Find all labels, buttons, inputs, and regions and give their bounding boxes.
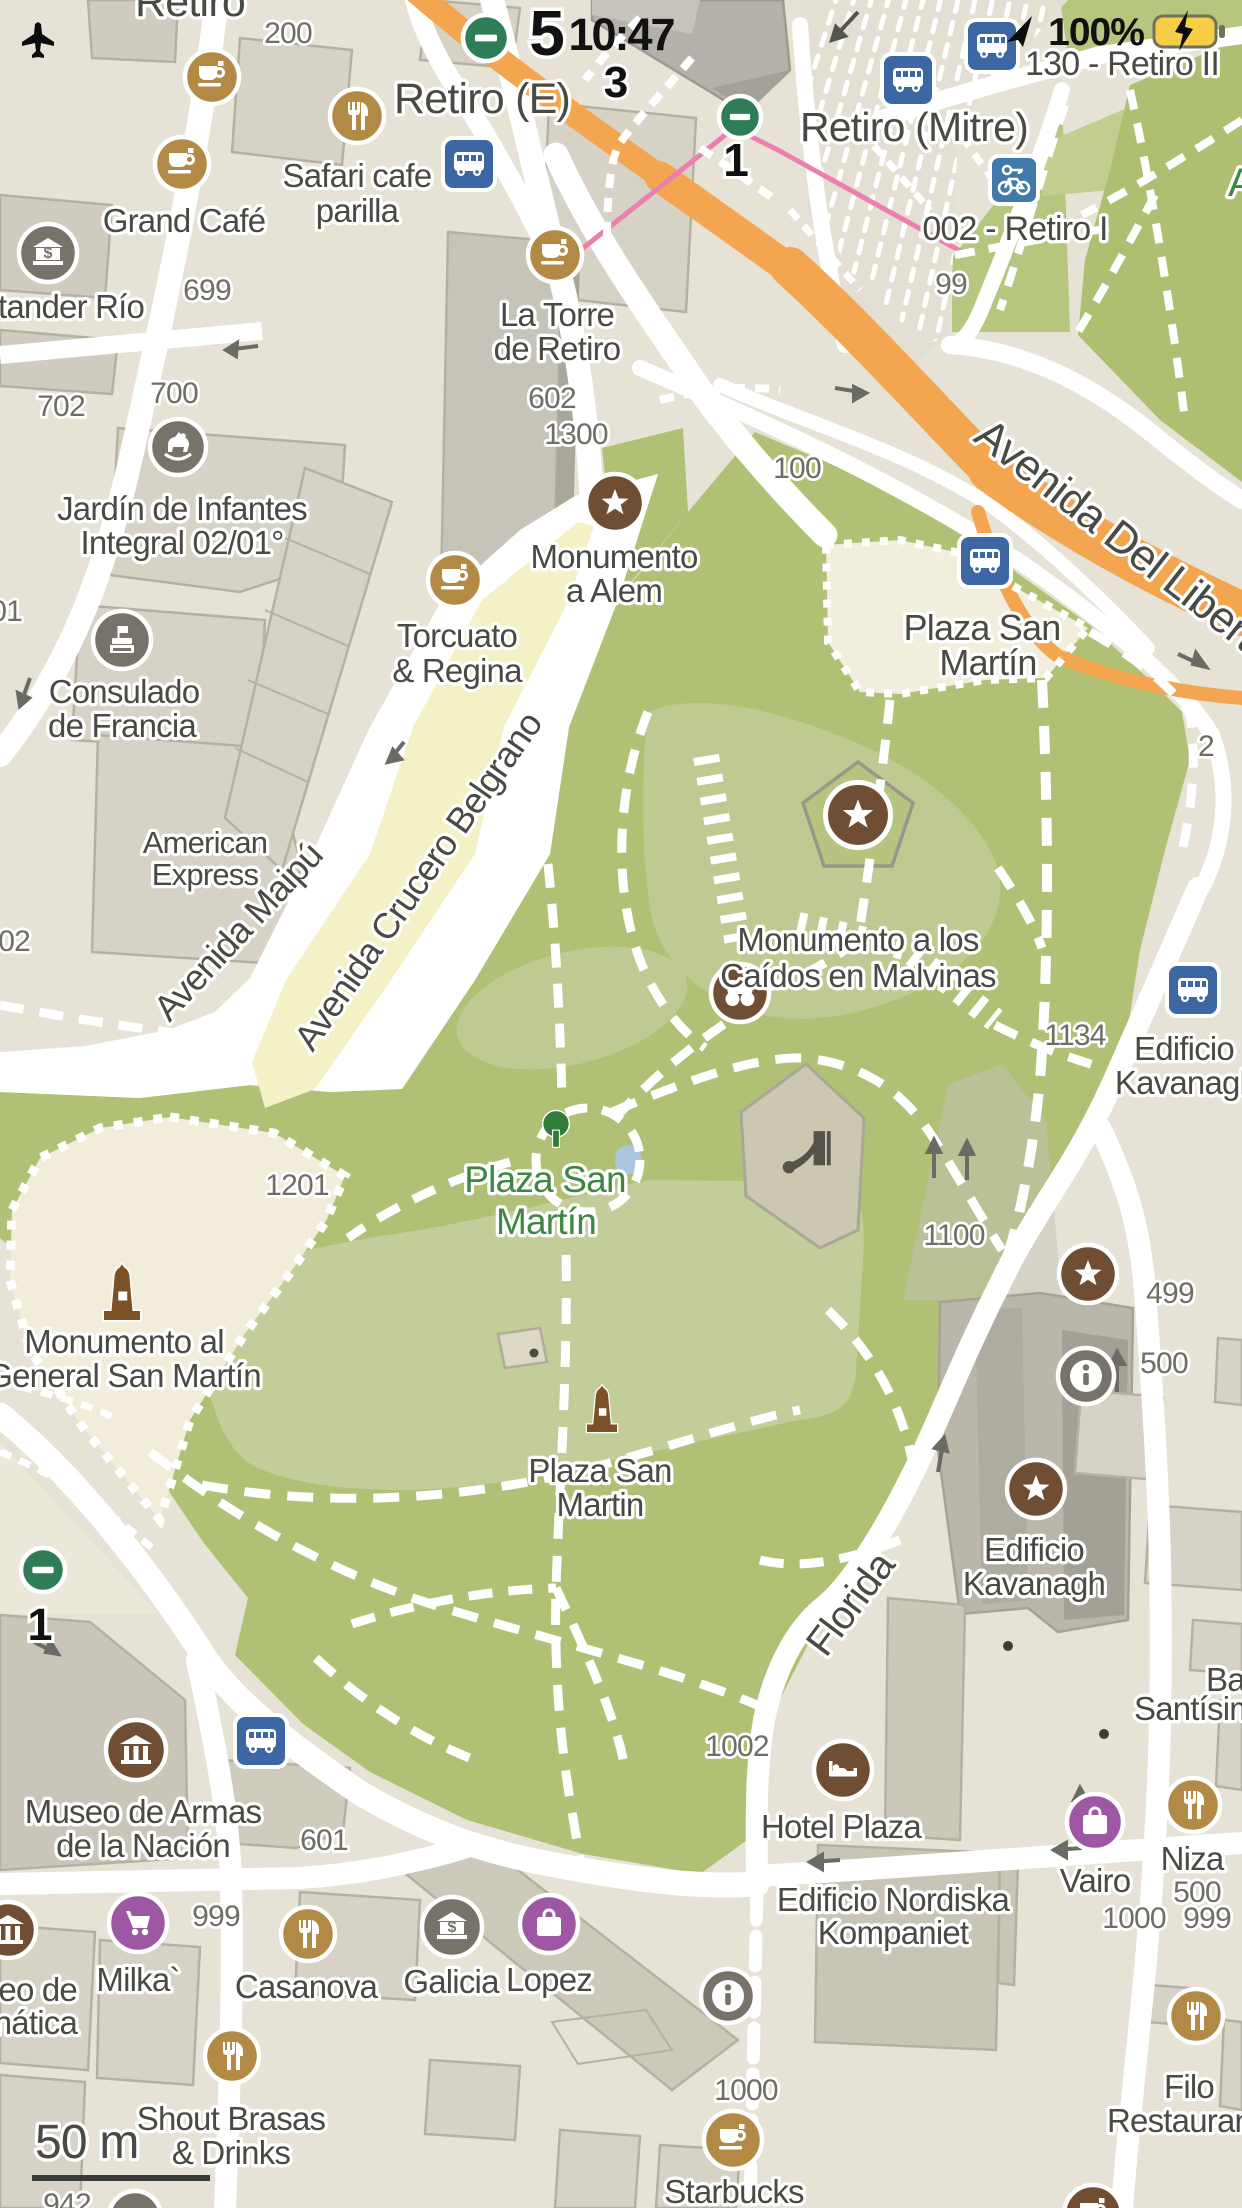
svg-text:General San Martín: General San Martín	[0, 1357, 261, 1394]
svg-text:de Retiro: de Retiro	[494, 330, 621, 367]
svg-text:Express: Express	[152, 857, 259, 892]
svg-text:& Drinks: & Drinks	[172, 2134, 291, 2171]
svg-text:Plaza San: Plaza San	[464, 1159, 625, 1200]
svg-text:Edificio: Edificio	[984, 1531, 1084, 1568]
svg-text:Museo de Armas: Museo de Armas	[25, 1793, 262, 1830]
svg-text:Casanova: Casanova	[235, 1968, 379, 2005]
svg-text:a Alem: a Alem	[566, 572, 662, 609]
svg-text:Monumento a los: Monumento a los	[737, 921, 978, 958]
svg-text:100: 100	[773, 452, 821, 485]
svg-text:Galicia: Galicia	[403, 1963, 500, 2000]
svg-text:02: 02	[0, 925, 30, 958]
svg-text:700: 700	[150, 377, 198, 410]
svg-text:Integral 02/01°: Integral 02/01°	[80, 524, 283, 561]
svg-text:Caídos en Malvinas: Caídos en Malvinas	[720, 957, 996, 994]
svg-text:La Torre: La Torre	[500, 296, 614, 333]
svg-text:Monumento al: Monumento al	[24, 1323, 224, 1360]
svg-text:1: 1	[27, 1599, 52, 1650]
svg-text:2: 2	[1198, 730, 1214, 763]
svg-text:American: American	[143, 825, 268, 860]
svg-text:Starbucks: Starbucks	[664, 2173, 804, 2208]
svg-text:Filo: Filo	[1164, 2068, 1214, 2105]
svg-text:Milka`: Milka`	[96, 1961, 179, 1998]
svg-text:1000: 1000	[1102, 1902, 1166, 1935]
svg-text:699: 699	[183, 274, 231, 307]
svg-text:602: 602	[528, 382, 576, 415]
svg-text:Retiro: Retiro	[135, 0, 245, 26]
svg-text:Shout Brasas: Shout Brasas	[137, 2100, 326, 2137]
svg-text:500: 500	[1140, 1347, 1188, 1380]
svg-text:100%: 100%	[1048, 11, 1144, 54]
svg-text:Safari cafe: Safari cafe	[283, 157, 432, 194]
svg-text:de la Nación: de la Nación	[56, 1827, 230, 1864]
svg-text:Martín: Martín	[496, 1201, 596, 1242]
svg-text:999: 999	[192, 1900, 240, 1933]
svg-text:Kavanagh: Kavanagh	[963, 1565, 1105, 1602]
svg-text:Retiro (E): Retiro (E)	[394, 75, 570, 123]
svg-text:Martín: Martín	[939, 642, 1036, 683]
svg-text:1134: 1134	[1044, 1019, 1105, 1052]
svg-text:1: 1	[723, 134, 749, 186]
svg-text:Edificio Nordiska: Edificio Nordiska	[777, 1881, 1011, 1918]
svg-text:5: 5	[529, 0, 565, 69]
svg-text:1002: 1002	[705, 1730, 769, 1763]
svg-text:Vairo: Vairo	[1060, 1862, 1131, 1899]
svg-text:1100: 1100	[923, 1219, 984, 1252]
svg-text:702: 702	[37, 390, 85, 423]
svg-text:Martin: Martin	[557, 1486, 644, 1523]
svg-text:3: 3	[604, 58, 628, 107]
svg-text:nática: nática	[0, 2004, 78, 2041]
svg-text:601: 601	[300, 1824, 348, 1857]
svg-text:Kavanagh: Kavanagh	[1115, 1064, 1242, 1101]
svg-text:942: 942	[43, 2188, 91, 2208]
svg-text:002 - Retiro I: 002 - Retiro I	[922, 210, 1107, 248]
svg-text:Consulado: Consulado	[49, 673, 200, 710]
svg-text:Lopez: Lopez	[506, 1961, 592, 1998]
svg-text:de Francia: de Francia	[48, 707, 197, 744]
svg-text:Santísim: Santísim	[1134, 1690, 1242, 1727]
svg-text:& Regina: & Regina	[392, 652, 523, 689]
svg-text:eo de: eo de	[0, 1971, 77, 2008]
svg-text:Grand Café: Grand Café	[103, 202, 266, 239]
svg-text:Jardín de Infantes: Jardín de Infantes	[57, 490, 307, 527]
svg-text:tander Río: tander Río	[0, 288, 144, 325]
svg-text:Kompaniet: Kompaniet	[818, 1914, 969, 1951]
svg-text:50 m: 50 m	[35, 2116, 139, 2169]
svg-text:500: 500	[1173, 1876, 1221, 1909]
svg-text:Hotel Plaza: Hotel Plaza	[761, 1808, 922, 1845]
svg-text:1300: 1300	[544, 418, 608, 451]
svg-text:Edificio: Edificio	[1134, 1030, 1234, 1067]
svg-text:Monumento: Monumento	[530, 538, 697, 575]
svg-text:Torcuato: Torcuato	[397, 617, 517, 654]
svg-text:01: 01	[0, 595, 22, 628]
svg-text:10:47: 10:47	[568, 9, 674, 60]
svg-text:200: 200	[264, 17, 312, 50]
svg-text:A: A	[1228, 161, 1242, 205]
svg-text:99: 99	[935, 268, 967, 301]
svg-text:Plaza San: Plaza San	[528, 1452, 671, 1489]
svg-text:499: 499	[1146, 1277, 1194, 1310]
svg-text:parilla: parilla	[316, 192, 400, 229]
svg-text:Niza: Niza	[1161, 1840, 1225, 1877]
svg-text:Retiro (Mitre): Retiro (Mitre)	[800, 104, 1028, 150]
svg-text:Restauran: Restauran	[1107, 2102, 1242, 2139]
svg-text:1201: 1201	[265, 1169, 329, 1202]
svg-text:1000: 1000	[714, 2074, 778, 2107]
